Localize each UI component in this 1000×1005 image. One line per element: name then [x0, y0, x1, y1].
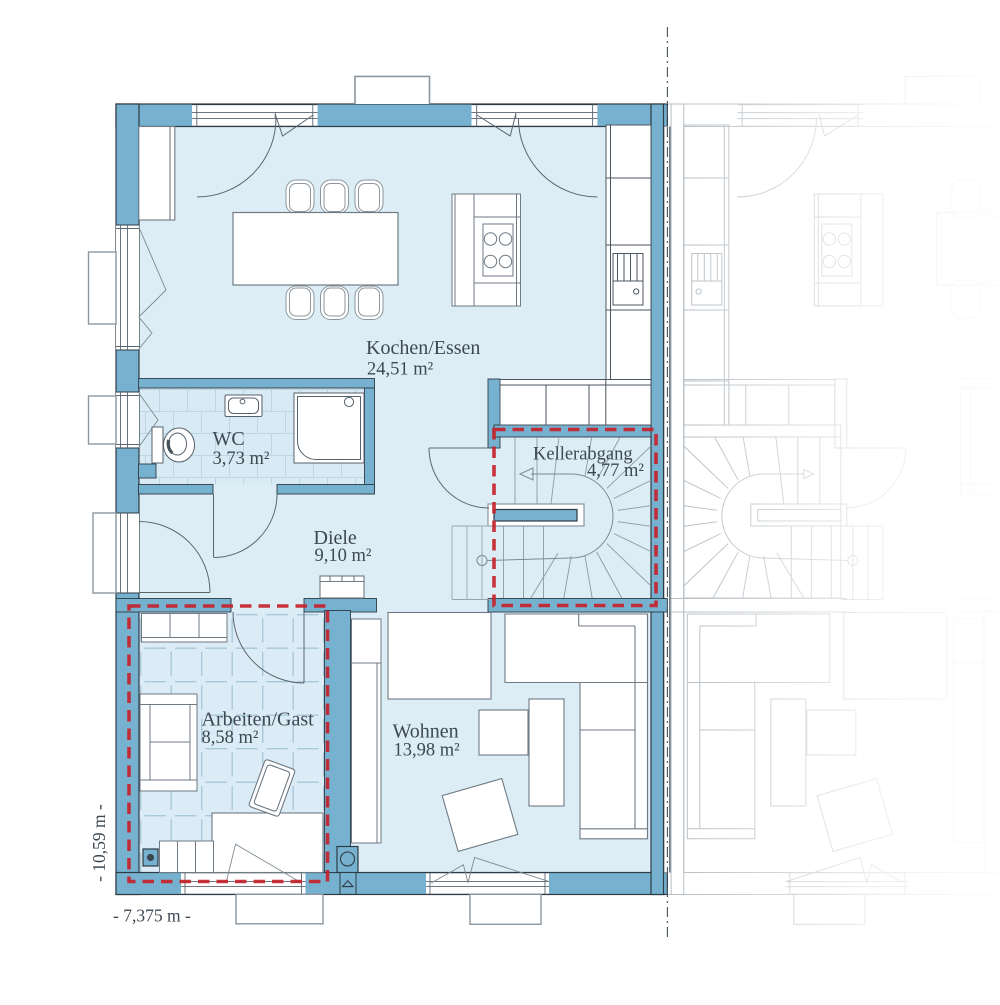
svg-text:24,51 m²: 24,51 m² [367, 360, 434, 380]
svg-text:- 10,59 m -: - 10,59 m - [89, 804, 109, 882]
svg-text:9,10 m²: 9,10 m² [315, 546, 372, 566]
svg-text:Wohnen: Wohnen [393, 721, 459, 743]
svg-text:8,58 m²: 8,58 m² [202, 728, 259, 748]
svg-text:WC: WC [213, 428, 245, 450]
svg-text:Kochen/Essen: Kochen/Essen [366, 337, 480, 359]
svg-text:13,98 m²: 13,98 m² [394, 741, 461, 761]
svg-text:4,77 m²: 4,77 m² [587, 461, 644, 481]
svg-text:- 7,375 m -: - 7,375 m - [113, 906, 191, 926]
svg-text:3,73 m²: 3,73 m² [213, 449, 270, 469]
